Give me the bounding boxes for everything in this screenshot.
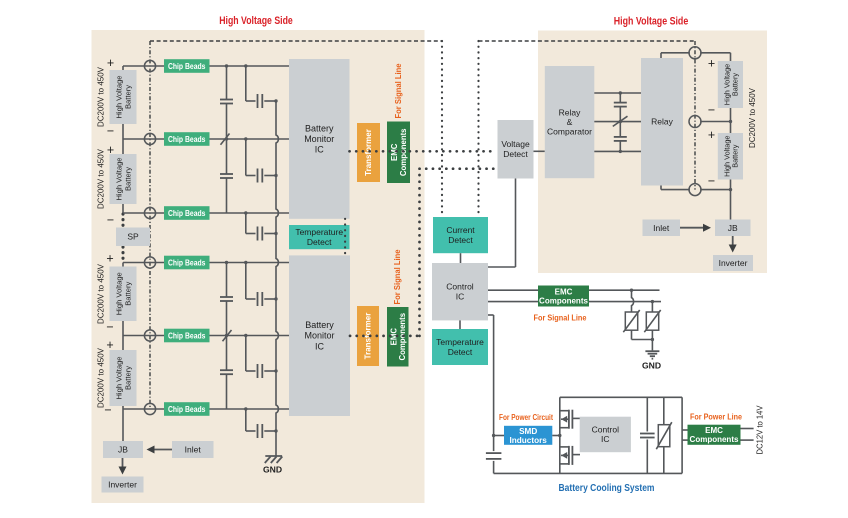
svg-text:DC200V to 450V: DC200V to 450V: [97, 263, 106, 324]
svg-text:Chip Beads: Chip Beads: [168, 61, 206, 71]
svg-text:For Power Line: For Power Line: [690, 412, 742, 422]
svg-text:High Voltage Side: High Voltage Side: [219, 15, 293, 27]
svg-text:DC200V to 450V: DC200V to 450V: [97, 148, 106, 209]
svg-text:GND: GND: [642, 361, 661, 371]
svg-text:SP: SP: [127, 232, 139, 242]
svg-text:CurrentDetect: CurrentDetect: [446, 225, 475, 245]
svg-text:Chip Beads: Chip Beads: [168, 404, 206, 414]
svg-text:−: −: [107, 124, 114, 138]
svg-text:DC200V to 450V: DC200V to 450V: [97, 66, 106, 127]
svg-text:+: +: [106, 338, 113, 352]
svg-text:Chip Beads: Chip Beads: [168, 208, 206, 218]
svg-text:+: +: [708, 128, 715, 142]
svg-text:DC12V to 14V: DC12V to 14V: [755, 405, 765, 454]
svg-text:−: −: [106, 320, 113, 334]
svg-text:VoltageDetect: VoltageDetect: [501, 139, 530, 159]
svg-text:DC200V to 450V: DC200V to 450V: [748, 87, 757, 148]
svg-text:Relay: Relay: [651, 117, 673, 127]
svg-text:+: +: [106, 252, 113, 266]
svg-text:−: −: [708, 103, 715, 117]
svg-text:−: −: [107, 213, 114, 227]
svg-text:Chip Beads: Chip Beads: [168, 134, 206, 144]
svg-text:DC200V to 450V: DC200V to 450V: [97, 347, 106, 408]
svg-text:JB: JB: [118, 445, 128, 455]
svg-text:For Signal Line: For Signal Line: [393, 63, 403, 118]
svg-text:Chip Beads: Chip Beads: [168, 258, 206, 268]
svg-text:JB: JB: [728, 223, 738, 233]
svg-text:For Signal Line: For Signal Line: [534, 313, 587, 323]
svg-text:Transformer: Transformer: [364, 129, 373, 176]
svg-text:For Power Circuit: For Power Circuit: [499, 413, 553, 422]
svg-text:−: −: [708, 174, 715, 188]
svg-text:Inlet: Inlet: [653, 223, 670, 233]
svg-text:Chip Beads: Chip Beads: [168, 331, 206, 341]
svg-text:Inverter: Inverter: [108, 480, 137, 490]
svg-text:Inlet: Inlet: [185, 445, 202, 455]
svg-text:+: +: [107, 143, 114, 157]
svg-text:Inverter: Inverter: [719, 258, 748, 268]
svg-text:GND: GND: [263, 465, 282, 475]
svg-text:High Voltage Side: High Voltage Side: [614, 16, 689, 28]
svg-text:For Signal Line: For Signal Line: [392, 249, 402, 304]
svg-text:+: +: [708, 57, 715, 71]
svg-text:+: +: [107, 56, 114, 70]
svg-text:Battery Cooling System: Battery Cooling System: [559, 482, 655, 494]
